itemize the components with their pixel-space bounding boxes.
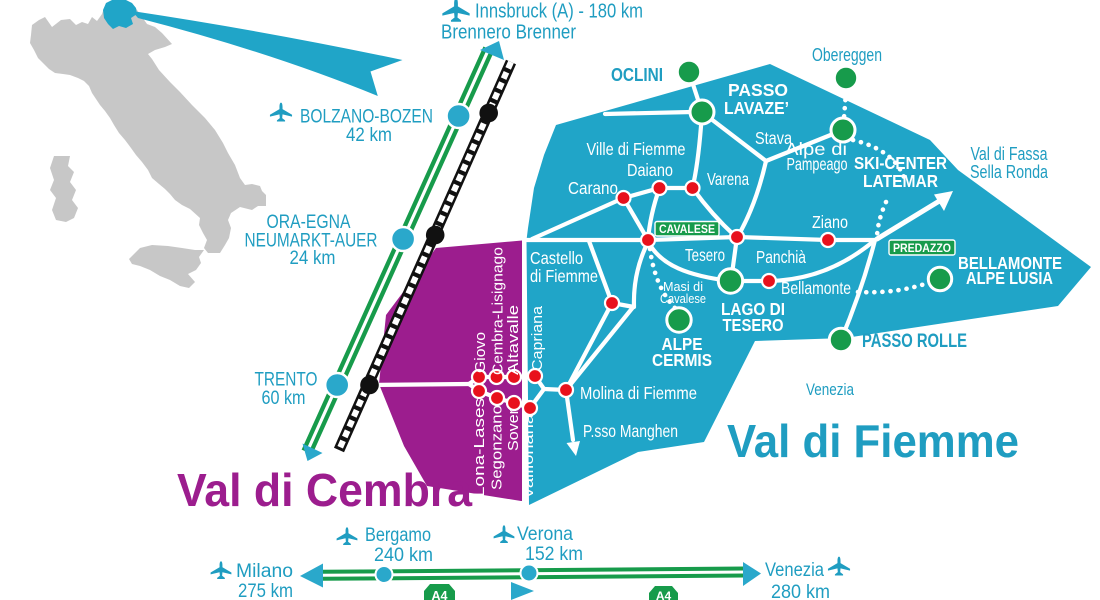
svg-text:Venezia: Venezia [806, 381, 855, 399]
svg-text:Panchià: Panchià [756, 247, 806, 267]
svg-text:Cavalese: Cavalese [660, 292, 706, 306]
svg-text:Val di Fassa: Val di Fassa [971, 144, 1049, 164]
svg-text:P.sso Manghen: P.sso Manghen [583, 421, 678, 441]
svg-text:Ville di Fiemme: Ville di Fiemme [587, 139, 686, 159]
svg-text:Altavalle: Altavalle [505, 305, 522, 375]
svg-text:TESERO: TESERO [723, 315, 784, 335]
svg-text:Bellamonte: Bellamonte [781, 278, 851, 298]
svg-text:A4: A4 [656, 589, 672, 600]
svg-text:152 km: 152 km [525, 544, 583, 565]
svg-text:Cembra-Lisignago: Cembra-Lisignago [490, 247, 507, 375]
svg-text:A4: A4 [432, 589, 448, 600]
svg-text:Capriana: Capriana [529, 305, 546, 371]
svg-text:Varena: Varena [707, 169, 749, 189]
svg-text:42 km: 42 km [346, 125, 392, 146]
svg-text:275 km: 275 km [238, 581, 293, 600]
svg-text:Carano: Carano [568, 178, 618, 198]
svg-text:Lona-Lases: Lona-Lases [471, 398, 488, 497]
svg-text:240 km: 240 km [374, 545, 433, 566]
svg-text:LAVAZE’: LAVAZE’ [724, 98, 789, 118]
svg-text:PASSO ROLLE: PASSO ROLLE [862, 331, 967, 352]
svg-text:Segonzano: Segonzano [489, 405, 506, 490]
svg-text:PASSO: PASSO [728, 80, 788, 100]
svg-text:Obereggen: Obereggen [812, 45, 882, 65]
svg-text:Val di Fiemme: Val di Fiemme [727, 415, 1019, 467]
svg-text:Daiano: Daiano [627, 160, 673, 180]
svg-text:ALPE LUSIA: ALPE LUSIA [966, 268, 1053, 288]
svg-text:Venezia: Venezia [765, 560, 824, 581]
svg-text:Innsbruck (A) - 180 km: Innsbruck (A) - 180 km [475, 1, 643, 23]
svg-text:60 km: 60 km [262, 388, 306, 409]
svg-text:CAVALESE: CAVALESE [659, 222, 715, 236]
svg-text:Molina di Fiemme: Molina di Fiemme [580, 383, 697, 403]
svg-text:Bergamo: Bergamo [365, 525, 431, 546]
svg-text:Verona: Verona [517, 524, 573, 545]
svg-text:Val di Cembra: Val di Cembra [177, 464, 472, 516]
svg-text:Valfloriana: Valfloriana [520, 413, 537, 499]
svg-text:Tesero: Tesero [685, 245, 725, 265]
svg-text:CERMIS: CERMIS [652, 350, 712, 370]
svg-text:LATEMAR: LATEMAR [863, 171, 938, 191]
svg-text:Sella Ronda: Sella Ronda [970, 162, 1049, 182]
svg-text:Milano: Milano [236, 561, 293, 582]
svg-text:PREDAZZO: PREDAZZO [893, 241, 951, 255]
svg-text:Brennero Brenner: Brennero Brenner [441, 22, 576, 44]
svg-text:Pampeago: Pampeago [787, 154, 848, 174]
svg-text:Giovo: Giovo [472, 332, 489, 373]
svg-text:280 km: 280 km [771, 582, 830, 600]
svg-text:Ziano: Ziano [812, 212, 848, 232]
svg-text:Castello: Castello [530, 248, 583, 268]
svg-text:24 km: 24 km [290, 248, 336, 269]
svg-text:OCLINI: OCLINI [611, 65, 663, 85]
svg-text:di Fiemme: di Fiemme [530, 266, 598, 286]
svg-text:SKI-CENTER: SKI-CENTER [854, 153, 947, 173]
